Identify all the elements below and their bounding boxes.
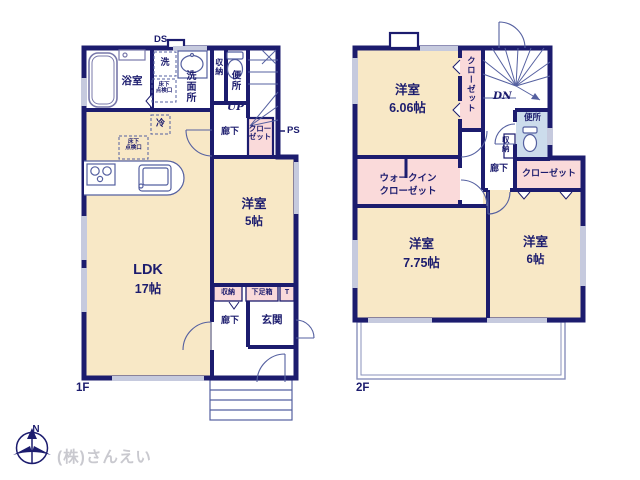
label-floor2: 2F	[356, 382, 369, 395]
kitchen-sink-icon	[139, 165, 171, 191]
label-hatch-washroom: 床下点検口	[152, 82, 176, 94]
label-entrance-hallway: 廊下	[212, 316, 248, 326]
label-ldk-size: 17帖	[84, 283, 212, 297]
label-bedroom5-size: 5帖	[212, 216, 296, 229]
label-bedroom5: 洋室	[212, 198, 296, 212]
label-bedroom6: 洋室	[488, 236, 583, 250]
label-laundry: 洗	[154, 58, 176, 68]
label-toilet-2f: 便所	[515, 113, 550, 122]
label-bedroom775-size: 7.75帖	[355, 257, 488, 271]
label-ds: DS	[154, 35, 167, 45]
label-up: UP	[227, 102, 244, 114]
label-closet-1f: クローゼット	[246, 125, 274, 142]
label-closet-side: クローゼット	[466, 56, 475, 113]
label-hallway-2f: 廊下	[483, 164, 515, 174]
label-entrance-storage: 収納	[214, 289, 242, 297]
floor-plan-canvas: N DS 浴室 洗 洗面所 床下点検口 収納 便所 UP 廊下 クローゼット P…	[0, 0, 640, 480]
label-bedroom775: 洋室	[355, 238, 488, 252]
label-entrance: 玄関	[248, 315, 296, 327]
toilet-2f-icon	[523, 127, 537, 152]
label-floor1: 1F	[76, 382, 89, 395]
entrance-steps	[210, 380, 292, 420]
label-storage-1f: 収納	[214, 58, 223, 76]
label-dn: DN	[493, 91, 512, 103]
label-hatch-ldk: 床下点検口	[119, 139, 148, 151]
compass-icon: N	[13, 424, 51, 464]
label-storage-2f: 収納	[501, 136, 509, 153]
label-wic-line1: ウォークイン	[357, 174, 459, 184]
label-shoe-box: 下足箱	[246, 289, 278, 297]
label-fridge: 冷	[151, 119, 170, 129]
label-bedroom606-size: 6.06帖	[355, 102, 460, 116]
label-toilet-1f: 便所	[229, 70, 239, 91]
stove-icon	[87, 164, 115, 185]
label-washroom: 洗面所	[184, 70, 195, 103]
balcony	[357, 322, 565, 379]
company-watermark: (株)さんえい	[57, 449, 152, 466]
label-bath: 浴室	[112, 76, 152, 88]
label-closet-right: クローゼット	[515, 169, 583, 179]
bath-counter-icon	[119, 50, 145, 60]
label-bedroom6-size: 6帖	[488, 254, 583, 267]
label-ps: PS	[287, 126, 300, 136]
label-wic-line2: クローゼット	[357, 187, 459, 197]
label-shoe-t: T	[280, 289, 294, 297]
label-ldk: LDK	[84, 263, 212, 279]
label-bedroom606: 洋室	[355, 84, 460, 98]
label-hallway-1f: 廊下	[212, 127, 248, 137]
compass-n-label: N	[32, 424, 39, 435]
